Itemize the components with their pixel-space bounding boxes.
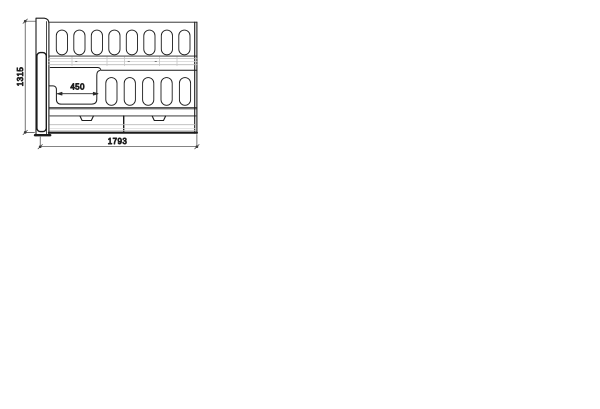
- svg-text:1315: 1315: [16, 67, 25, 87]
- svg-text:1793: 1793: [108, 137, 128, 146]
- svg-text:450: 450: [70, 83, 85, 92]
